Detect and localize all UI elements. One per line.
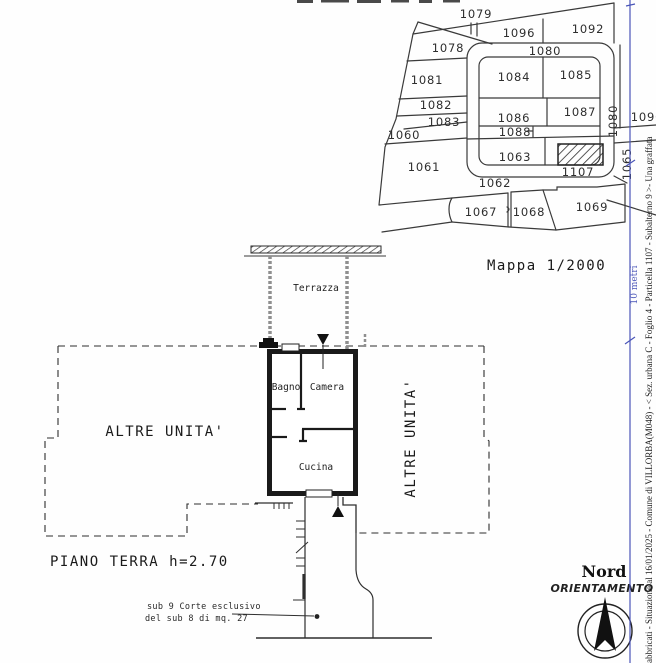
compass [578, 597, 632, 658]
parcel-label-1061: 1061 [408, 160, 440, 174]
parcel-label-1090: 1090 [631, 110, 656, 124]
orientation-label: ORIENTAMENTO [550, 582, 653, 595]
parcel-label-1092: 1092 [572, 22, 604, 36]
parcel-label-1083: 1083 [428, 115, 460, 129]
parcel-label-1069: 1069 [576, 200, 608, 214]
apartment-unit [270, 334, 357, 517]
driveway-curve [356, 533, 373, 638]
north-label: Nord [582, 562, 627, 581]
fence-ticks [274, 503, 289, 509]
label-altre-unita-left: ALTRE UNITA' [105, 424, 224, 440]
room-label-cucina: Cucina [299, 462, 333, 473]
clipped-text-remnant [297, 0, 460, 3]
label-altre-unita-right: ALTRE UNITA' [403, 378, 419, 497]
court-note-line1: sub 9 Corte esclusivo [147, 602, 261, 612]
parcel-label-1060: 1060 [388, 128, 420, 142]
parcel-label-1062: 1062 [479, 176, 511, 190]
pillar-symbol-base [259, 342, 278, 348]
gate-symbol [296, 542, 308, 553]
parcel-label-1081: 1081 [411, 73, 443, 87]
terrazza-top-wall [251, 246, 381, 253]
window-top [282, 344, 299, 351]
map-parcel-labels: 1079 1096 1092 1078 1080 1081 1084 1085 … [388, 7, 656, 219]
parcel-label-1079: 1079 [460, 7, 492, 21]
leader-dot [315, 614, 320, 619]
boundary-right-unit [358, 346, 489, 533]
room-label-camera: Camera [310, 382, 344, 393]
room-label-terrazza: Terrazza [293, 283, 339, 294]
floor-title: PIANO TERRA h=2.70 [50, 554, 229, 570]
window-bottom [306, 490, 332, 497]
parcel-label-1068: 1068 [513, 205, 545, 219]
parcel-label-1065: 1065 [620, 148, 634, 180]
footer-cadastral-text: Fabbricati - Situazione al 16/01/2025 - … [644, 137, 654, 663]
parcel-label-1067: 1067 [465, 205, 497, 219]
boundary-left-unit [45, 346, 258, 536]
parcel-1107-hatched-area [558, 144, 603, 165]
scale-label: 10 metri [630, 265, 640, 304]
entrance-arrow-north [317, 334, 329, 345]
parcel-label-1084: 1084 [498, 70, 530, 84]
room-label-bagno: Bagno [272, 382, 301, 393]
parcel-label-1096: 1096 [503, 26, 535, 40]
parcel-label-1086: 1086 [498, 111, 530, 125]
courtyard-structure [232, 497, 432, 638]
parcel-label-1080-right: 1080 [606, 105, 620, 137]
map-scale-title: Mappa 1/2000 [487, 258, 606, 274]
parcel-label-1082: 1082 [420, 98, 452, 112]
parcel-label-1087: 1087 [564, 105, 596, 119]
parcel-label-1078: 1078 [432, 41, 464, 55]
scale-bar [625, 0, 635, 663]
terrazza-structure [244, 246, 386, 350]
planimetria-drawing: 1079 1096 1092 1078 1080 1081 1084 1085 … [0, 0, 656, 663]
parcel-label-1063: 1063 [499, 150, 531, 164]
court-note-line2: del sub 8 di mq. 27 [145, 614, 248, 624]
parcel-label-1080-top: 1080 [529, 44, 561, 58]
entrance-arrow-south [332, 506, 344, 517]
pillar-symbol [263, 338, 274, 342]
cadastral-document-page: 1079 1096 1092 1078 1080 1081 1084 1085 … [0, 0, 656, 663]
parcel-label-1107: 1107 [562, 165, 594, 179]
parcel-label-1088: 1088 [499, 125, 531, 139]
parcel-label-1085: 1085 [560, 68, 592, 82]
